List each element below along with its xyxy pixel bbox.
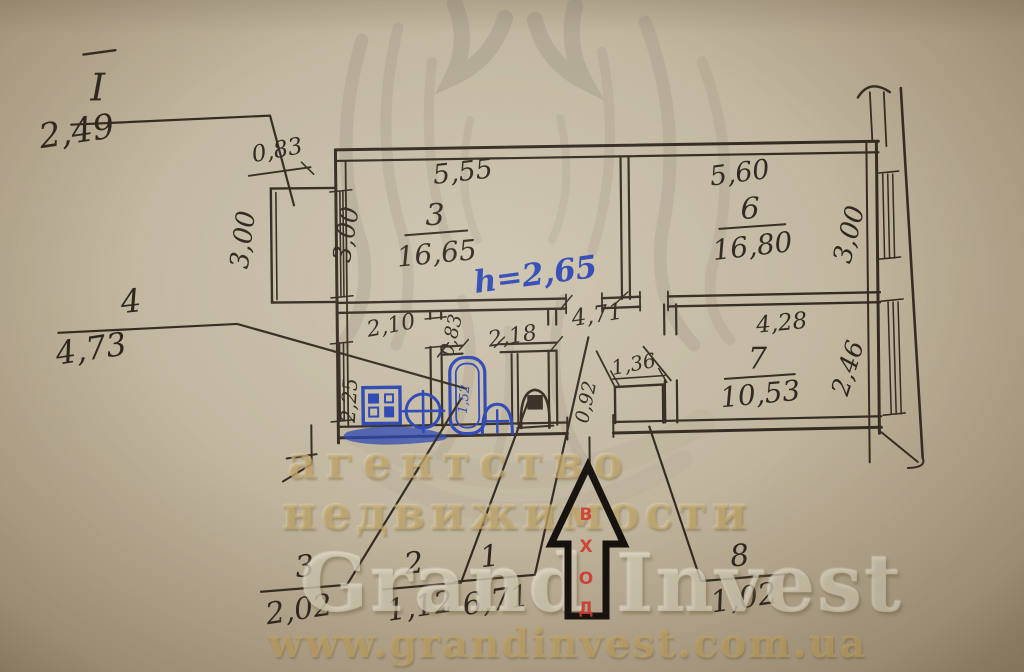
entrance-marker: В Х О Д (0, 0, 1024, 672)
floor-plan-photo: I 2,49 4 4,73 0,83 3,00 5,55 3,00 3 16,6… (0, 0, 1024, 672)
entrance-letter-o: О (579, 569, 593, 589)
entrance-letter-h: Х (579, 537, 592, 557)
entrance-letter-v: В (580, 505, 593, 525)
entrance-letter-d: Д (578, 599, 593, 619)
